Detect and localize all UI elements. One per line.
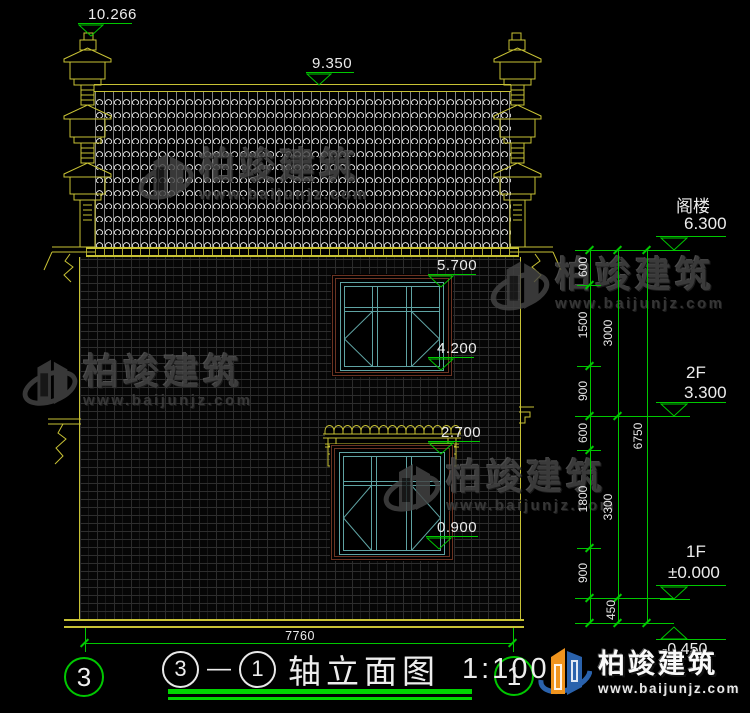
plinth-base	[64, 619, 524, 628]
watermark-name: 柏竣建筑	[199, 148, 368, 184]
elev-triangle-icon	[306, 73, 332, 86]
title-name: 轴立面图	[288, 645, 440, 693]
watermark-logo-icon	[490, 252, 550, 316]
dim-value: 600	[576, 398, 590, 468]
title-axis-to-number: 1	[251, 656, 263, 682]
floor-label-2f: 2F	[686, 363, 706, 383]
dim-value: 450	[604, 575, 618, 645]
left-gable-finial-stack	[40, 28, 112, 286]
elev-triangle-icon	[78, 24, 104, 37]
watermark-url: www.baijunjz.com	[83, 393, 252, 408]
title-axis-to: 1	[239, 651, 276, 688]
elev-triangle-up-icon	[660, 626, 688, 640]
dim-chain-line-1	[590, 250, 591, 623]
brand-url: www.baijunjz.com	[598, 682, 740, 696]
eave-fascia	[86, 247, 519, 257]
floor-elev-attic: 6.300	[684, 214, 727, 234]
elev-triangle-icon	[428, 275, 454, 288]
dim-chain-line-2	[618, 250, 619, 623]
title-axis-from-number: 3	[174, 656, 186, 682]
cad-elevation-drawing: 柏竣建筑 www.baijunjz.com 柏竣建筑 www.baijunjz.…	[0, 0, 750, 713]
floor-label-1f: 1F	[686, 542, 706, 562]
title-scale: 1:100	[462, 653, 550, 686]
brand-logo-icon	[538, 642, 592, 704]
watermark-roof: 柏竣建筑 www.baijunjz.com	[138, 146, 368, 204]
elev-label-4200: 4.200	[437, 340, 477, 357]
floor-elev-1f: ±0.000	[668, 563, 720, 583]
brand-name: 柏竣建筑	[598, 651, 740, 678]
title-underline-thick	[168, 689, 472, 694]
watermark-logo-icon	[383, 455, 441, 517]
dim-value: 900	[576, 538, 590, 608]
dim-value: 1800	[576, 464, 590, 534]
elev-triangle-icon	[428, 442, 454, 455]
floor-elev-2f: 3.300	[684, 383, 727, 403]
title-underline-thin	[168, 697, 472, 700]
dim-value: 3300	[601, 472, 615, 542]
left-eave-bracket	[48, 414, 81, 469]
watermark-text: 柏竣建筑 www.baijunjz.com	[199, 148, 368, 202]
dim-value: 6750	[631, 401, 645, 471]
elev-triangle-icon	[428, 358, 454, 371]
watermark-logo-icon	[22, 352, 78, 410]
dim-line-total-width	[85, 643, 514, 644]
drawing-title: 3 — 1 轴立面图 1:100	[162, 645, 550, 693]
watermark-logo-icon	[138, 146, 194, 204]
title-dash: —	[207, 655, 231, 683]
watermark-url: www.baijunjz.com	[199, 187, 368, 202]
elev-label-10266: 10.266	[88, 6, 137, 23]
elev-label-9350: 9.350	[312, 55, 352, 72]
elev-triangle-icon	[660, 237, 688, 251]
elev-line	[656, 639, 726, 640]
watermark-name: 柏竣建筑	[83, 354, 252, 390]
brand-text: 柏竣建筑 www.baijunjz.com	[598, 651, 740, 696]
elev-triangle-icon	[426, 537, 452, 550]
dim-value: 3000	[601, 298, 615, 368]
right-gable-finial-stack	[493, 28, 565, 286]
elev-underline	[660, 599, 690, 600]
dim-total-width: 7760	[270, 629, 330, 643]
elev-label-0900: 0.900	[437, 519, 477, 536]
watermark-left-wall: 柏竣建筑 www.baijunjz.com	[22, 352, 252, 410]
elev-label-5700: 5.700	[437, 257, 477, 274]
watermark-text: 柏竣建筑 www.baijunjz.com	[83, 354, 252, 408]
roof-ridge-line	[94, 84, 511, 85]
brand-logo: 柏竣建筑 www.baijunjz.com	[538, 642, 740, 704]
elev-label-2700: 2.700	[441, 424, 481, 441]
dim-chain-line-3	[647, 250, 648, 623]
axis-number: 3	[77, 662, 91, 693]
title-axis-from: 3	[162, 651, 199, 688]
axis-bubble-3: 3	[64, 657, 104, 697]
dim-value: 1500	[576, 290, 590, 360]
right-eave-bracket	[519, 404, 539, 426]
elev-triangle-icon	[660, 403, 688, 417]
